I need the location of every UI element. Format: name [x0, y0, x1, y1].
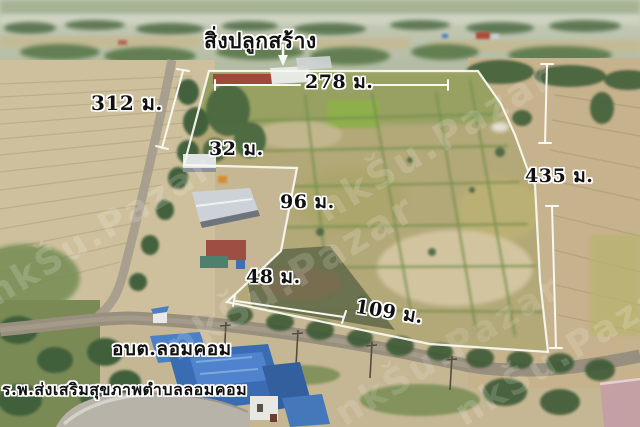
annotation-overlay — [0, 0, 640, 427]
building-callout-label: สิ่งปลูกสร้าง — [204, 30, 317, 51]
measurement-label-notch-diagonal: 48 ม. — [246, 268, 301, 287]
aerial-land-listing-photo: nkŠu.Pazar nkŠu.Pazar nkŠu.Pazar nkŠu.Pa… — [0, 0, 640, 427]
measurement-label-left: 312 ม. — [91, 93, 163, 113]
measurement-label-top: 278 ม. — [305, 73, 373, 92]
measure-line-bottom — [233, 295, 346, 323]
measurement-label-notch-side: 96 ม. — [280, 193, 335, 212]
landmark-label-hospital: ร.พ.ส่งเสริมสุขภาพตำบลลอมคอม — [2, 382, 247, 398]
measurement-label-notch-top: 32 ม. — [209, 140, 264, 159]
measurement-label-right: 435 ม. — [525, 167, 593, 186]
landmark-label-sao: อบต.ลอมคอม — [112, 340, 232, 359]
